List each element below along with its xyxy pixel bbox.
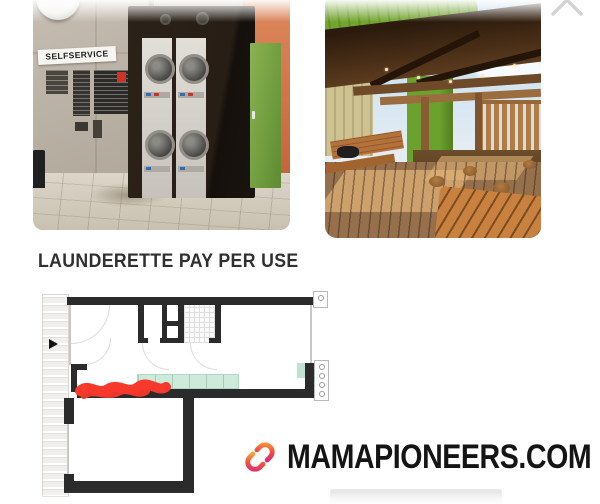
price-poster	[73, 70, 90, 116]
control-chip	[154, 93, 159, 96]
bag-on-bench	[337, 146, 359, 158]
control-chip	[180, 167, 185, 170]
washing-machine-door	[145, 130, 175, 160]
wood-stool	[523, 160, 536, 169]
info-poster	[46, 70, 68, 94]
control-chip	[188, 93, 193, 96]
top-fade-overlay	[0, 0, 600, 22]
symbol-dot	[319, 373, 325, 379]
symbol-dot	[318, 295, 324, 301]
green-door	[250, 43, 281, 188]
laundry-cabinet	[128, 6, 255, 198]
string-light	[513, 64, 516, 67]
small-label	[93, 120, 102, 138]
machine-control-panel	[178, 166, 204, 172]
washer-dryer-column	[176, 38, 206, 198]
machine-control-panel	[144, 92, 170, 98]
small-label	[75, 122, 88, 131]
entry-arrow-icon	[49, 339, 58, 349]
symbol-dot	[319, 391, 325, 397]
symbol-dot	[319, 382, 325, 388]
washing-machine-door	[179, 130, 209, 160]
plan-column-symbol	[313, 291, 328, 308]
string-light	[481, 74, 484, 77]
washing-machine-door	[179, 54, 209, 84]
plan-fixture-green	[297, 363, 305, 378]
washer-dryer-column	[142, 38, 172, 198]
price-highlight	[117, 72, 126, 82]
close-icon[interactable]	[549, 0, 585, 16]
staircase	[42, 294, 69, 497]
wood-stool	[429, 176, 445, 187]
control-chip	[146, 167, 151, 170]
plan-window	[310, 305, 312, 363]
plan-lower-room-wall	[64, 398, 74, 424]
string-light	[385, 68, 388, 71]
story-viewer: SELFSERVICE LAUNDERET	[0, 0, 600, 504]
symbol-dot	[319, 364, 325, 370]
machine-control-panel	[144, 166, 170, 172]
bottom-fade-overlay	[0, 492, 600, 504]
launderette-photo: SELFSERVICE	[33, 0, 290, 230]
page-title: LAUNDERETTE PAY PER USE	[38, 251, 299, 273]
door-handle	[252, 111, 255, 119]
plan-window	[67, 424, 69, 476]
string-light	[449, 80, 452, 83]
wood-stool	[463, 166, 477, 176]
red-marker-scribble	[74, 374, 172, 402]
brand-link-sticker[interactable]: MAMAPIONEERS.COM	[237, 433, 600, 481]
control-chip	[180, 93, 185, 96]
plan-radiator-symbol	[314, 360, 329, 401]
plan-lower-room-wall	[183, 398, 194, 493]
terrace-photo	[325, 0, 541, 238]
door-swing-arc	[142, 343, 169, 370]
machine-control-panel	[178, 92, 204, 98]
washing-machine-door	[145, 54, 175, 84]
waste-bin	[33, 150, 45, 188]
plan-top-wall	[67, 297, 315, 305]
door-swing-arc	[190, 343, 217, 370]
link-icon	[237, 434, 283, 480]
brand-domain-text: MAMAPIONEERS.COM	[287, 438, 591, 477]
control-chip	[146, 93, 151, 96]
pergola-post	[475, 93, 482, 155]
string-light	[417, 76, 420, 79]
door-swing-arc	[84, 338, 111, 365]
